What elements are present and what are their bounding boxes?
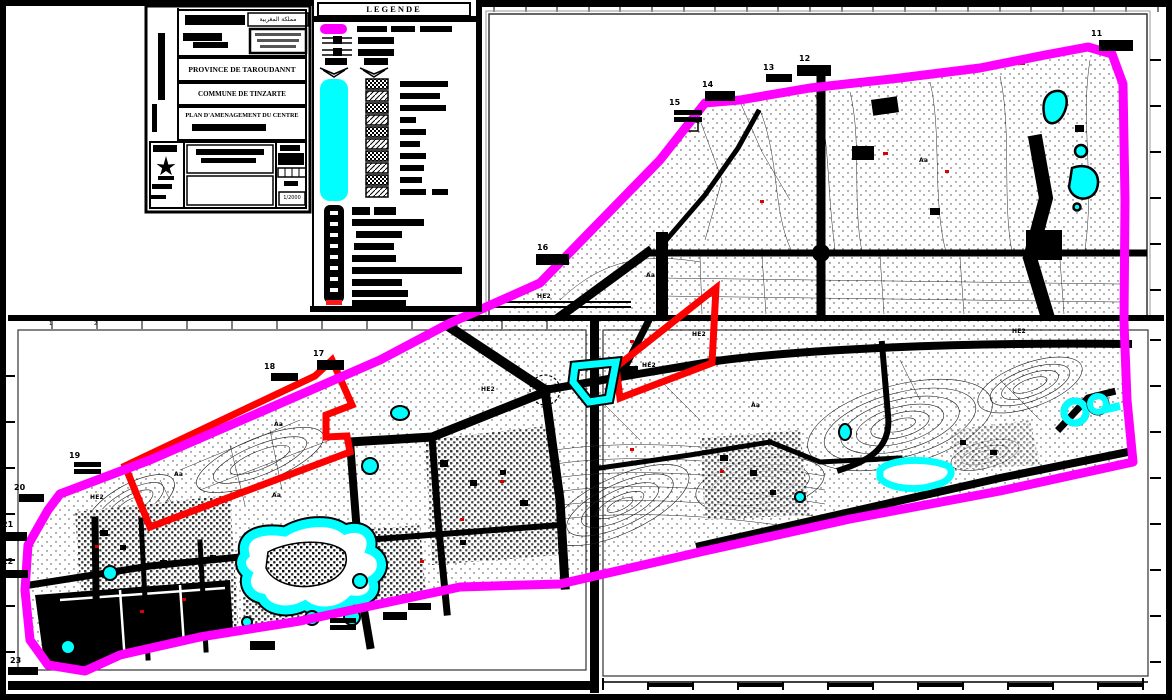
- ruler-label-1: 1: [49, 321, 52, 327]
- boundary-point-14: 14: [702, 80, 713, 89]
- boundary-point-22: 22: [2, 557, 13, 566]
- zone-label-he2: HE2: [692, 331, 706, 338]
- zone-label-aa: Aa: [174, 471, 183, 478]
- boundary-point-15: 15: [669, 98, 680, 107]
- boundary-point-12: 12: [799, 54, 810, 63]
- boundary-point-19: 19: [69, 451, 80, 460]
- kingdom-arabic-title: مملكة المغربية: [248, 13, 308, 26]
- boundary-point-11: 11: [1091, 29, 1102, 38]
- province-title: PROVINCE DE TAROUDANNT: [178, 58, 306, 81]
- plan-amenagement-document: مملكة المغربية PROVINCE DE TAROUDANNT CO…: [0, 0, 1172, 700]
- zone-label-aa: Aa: [751, 402, 760, 409]
- zone-label-he2: HE2: [1012, 328, 1026, 335]
- zone-label-aa: Aa: [272, 492, 281, 499]
- plan-drawing: [0, 0, 1172, 700]
- boundary-point-20: 20: [14, 483, 25, 492]
- zone-label-aa: Aa: [274, 421, 283, 428]
- plan-title: PLAN D'AMENAGEMENT DU CENTRE: [178, 109, 306, 123]
- zone-label-he2: HE2: [481, 386, 495, 393]
- boundary-point-13: 13: [763, 63, 774, 72]
- zone-label-aa: Aa: [646, 272, 655, 279]
- ruler-label-2: 2: [94, 321, 97, 327]
- map-sheet-top: [489, 14, 1160, 318]
- commune-title: COMMUNE DE TINZARTE: [178, 83, 306, 105]
- zone-label-he2: HE2: [642, 362, 656, 369]
- boundary-point-17: 17: [313, 349, 324, 358]
- zone-label-aa: Aa: [919, 157, 928, 164]
- legend-frame: [310, 0, 482, 312]
- zone-label-he2: HE2: [537, 293, 551, 300]
- scale-value: 1/2000: [279, 195, 305, 205]
- legend-title: LEGENDE: [318, 3, 470, 16]
- boundary-point-21: 21: [2, 520, 13, 529]
- boundary-point-16: 16: [537, 243, 548, 252]
- boundary-point-18: 18: [264, 362, 275, 371]
- zone-label-he2: HE2: [90, 494, 104, 501]
- boundary-point-23: 23: [10, 656, 21, 665]
